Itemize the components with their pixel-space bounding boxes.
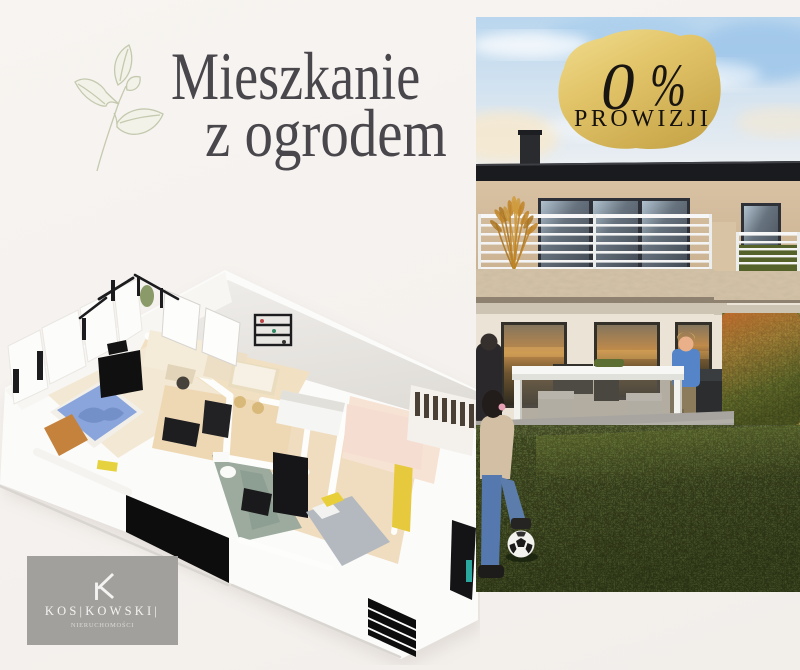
- svg-text:KOS|KOWSKI|: KOS|KOWSKI|: [45, 604, 160, 618]
- svg-text:PROWIZJI: PROWIZJI: [574, 106, 711, 132]
- svg-text:NIERUCHOMOŚCI: NIERUCHOMOŚCI: [71, 621, 134, 629]
